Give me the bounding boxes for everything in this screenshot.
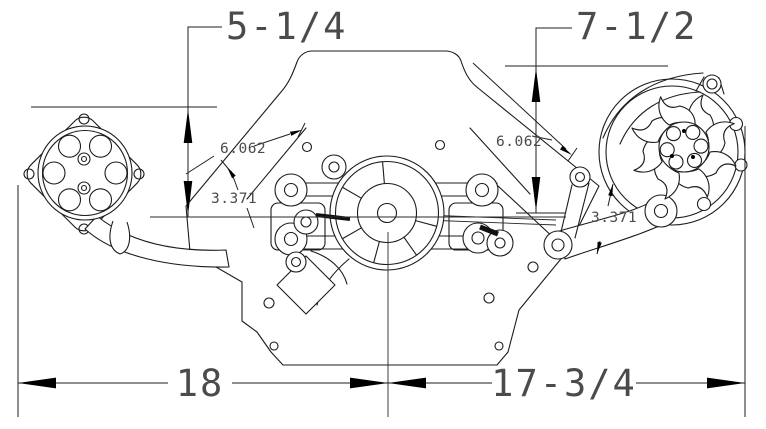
dimension-left-bracket: 3.371 <box>211 160 257 228</box>
dimension-right-face: 6.062 <box>473 63 577 161</box>
bracket-thumb <box>110 221 130 254</box>
bracket-ear-upper <box>570 167 590 187</box>
dim-label-right-bracket: 3.371 <box>591 210 637 226</box>
engine-accessory-drive-drawing: 5-1/4 7-1/2 6.062 3.371 6.062 <box>0 0 766 429</box>
bracket-ear-lower <box>544 231 572 259</box>
dim-label-left-face: 6.062 <box>220 141 266 157</box>
dim-label-bottom-right: 17-3/4 <box>491 362 637 405</box>
dim-label-left-bracket: 3.371 <box>211 191 257 207</box>
left-pulley-assembly <box>22 112 229 267</box>
alternator-top-ear <box>703 75 721 93</box>
dim-label-top-right: 7-1/2 <box>576 5 697 48</box>
water-pump <box>271 155 556 314</box>
bracket-arm <box>85 216 229 267</box>
pump-top-tab <box>322 155 346 179</box>
drawing-svg: 5-1/4 7-1/2 6.062 3.371 6.062 <box>0 0 766 429</box>
dim-label-bottom-left: 18 <box>176 362 225 405</box>
alternator-pivot <box>645 195 677 227</box>
dim-label-right-face: 6.062 <box>496 134 542 150</box>
dimension-left-face: 6.062 <box>186 123 305 174</box>
pump-volute <box>330 156 444 270</box>
pulley-face <box>38 126 132 220</box>
dim-label-top-left: 5-1/4 <box>226 5 347 48</box>
